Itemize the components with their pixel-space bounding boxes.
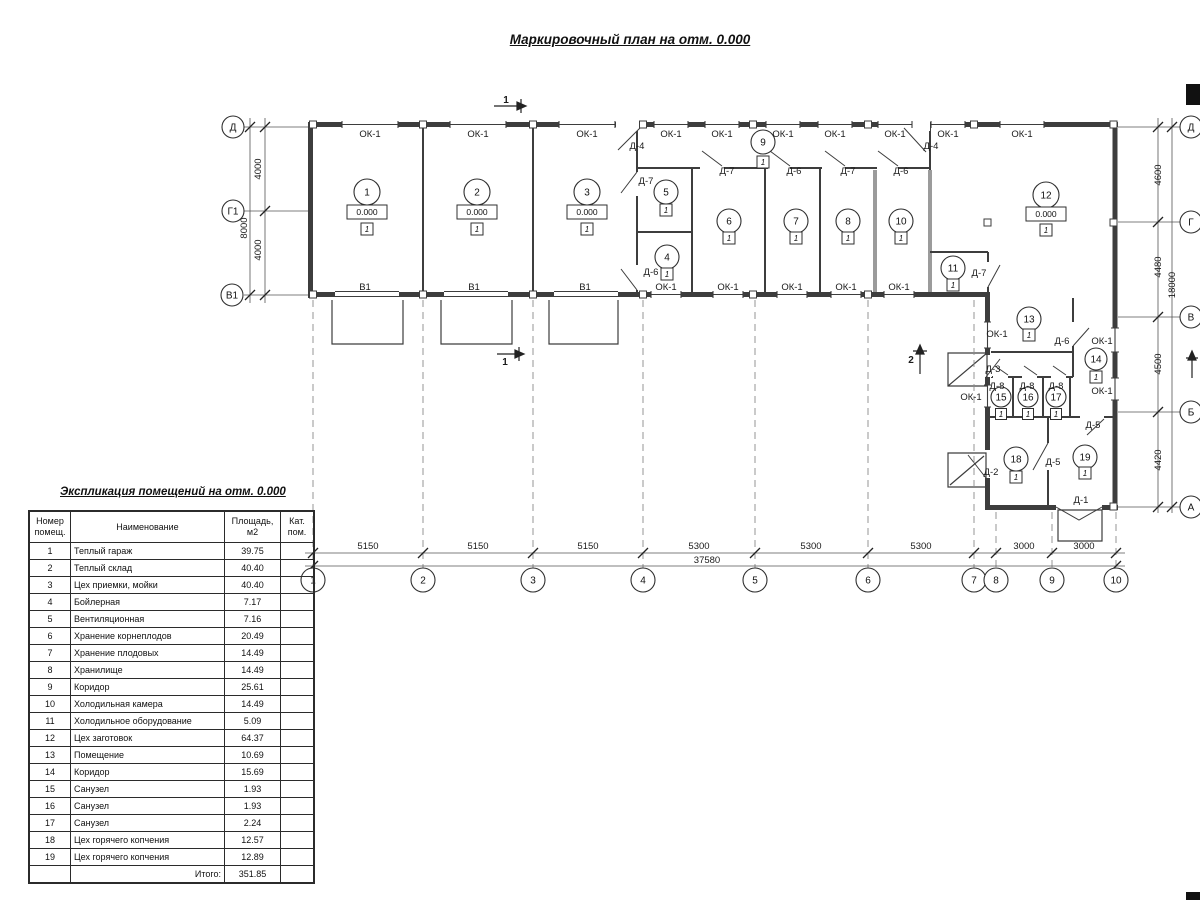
axis-bubble-label: 7 <box>971 576 977 587</box>
axis-bubble-label: В <box>1188 313 1195 324</box>
floor-type-mark-label: 1 <box>794 234 798 243</box>
table-row: 11Холодильное оборудование5.09 <box>29 713 314 730</box>
floor-type-mark-label: 1 <box>1026 410 1030 419</box>
room-bubble-label: 19 <box>1079 453 1091 464</box>
table-cell: Коридор <box>71 764 225 781</box>
floor-type-mark-label: 1 <box>1054 410 1058 419</box>
table-cell <box>281 713 315 730</box>
table-row: 10Холодильная камера14.49 <box>29 696 314 713</box>
axis-bubble-label: Б <box>1188 408 1195 419</box>
window-mark: ОК-1 <box>960 392 981 403</box>
table-cell: 7.16 <box>225 611 281 628</box>
door-mark: Д-3 <box>986 364 1001 375</box>
plan-labels: ДГ1В1ДГВБА123456789101235496781011121314… <box>226 95 1195 587</box>
gate-mark: В1 <box>579 282 591 293</box>
floor-type-mark-label: 1 <box>727 234 731 243</box>
dimension-total: 18000 <box>1167 272 1178 298</box>
window-mark: ОК-1 <box>781 282 802 293</box>
table-cell <box>281 628 315 645</box>
table-cell <box>281 798 315 815</box>
elevation-mark-label: 0.000 <box>576 207 598 217</box>
door-mark: Д-6 <box>644 267 659 278</box>
floor-type-mark-label: 1 <box>846 234 850 243</box>
floor-type-mark-label: 1 <box>665 270 669 279</box>
table-cell: 15 <box>29 781 71 798</box>
axis-bubble-label: 8 <box>993 576 999 587</box>
door-mark: Д-8 <box>1020 381 1035 392</box>
door-mark: Д-1 <box>1074 495 1089 506</box>
total-empty-cell <box>29 866 71 884</box>
table-cell: 3 <box>29 577 71 594</box>
axis-bubble-label: 9 <box>1049 576 1055 587</box>
table-cell: 16 <box>29 798 71 815</box>
table-cell: 1 <box>29 543 71 560</box>
table-cell <box>281 815 315 832</box>
table-cell <box>281 849 315 866</box>
floor-type-mark-label: 1 <box>1094 373 1098 382</box>
table-cell: 14.49 <box>225 645 281 662</box>
table-cell <box>281 730 315 747</box>
door-mark: Д-2 <box>984 467 999 478</box>
table-cell: 10 <box>29 696 71 713</box>
dimension: 4000 <box>253 239 264 260</box>
room-bubble-label: 3 <box>584 188 590 199</box>
table-cell: 8 <box>29 662 71 679</box>
table-cell: 40.40 <box>225 560 281 577</box>
table-row: 15Санузел1.93 <box>29 781 314 798</box>
table-cell: 14.49 <box>225 662 281 679</box>
table-cell <box>281 560 315 577</box>
window-mark: ОК-1 <box>711 129 732 140</box>
table-cell: 7.17 <box>225 594 281 611</box>
dimension: 3000 <box>1013 541 1034 552</box>
window-mark: ОК-1 <box>772 129 793 140</box>
dimension-total: 37580 <box>694 555 720 566</box>
room-bubble-label: 9 <box>760 138 766 149</box>
axis-bubble-label: Д <box>1188 123 1195 134</box>
explication-body: 1Теплый гараж39.752Теплый склад40.403Цех… <box>29 543 314 866</box>
exterior-walls <box>308 122 1118 510</box>
table-cell: 15.69 <box>225 764 281 781</box>
total-empty-cell <box>281 866 315 884</box>
table-cell: 25.61 <box>225 679 281 696</box>
floor-type-mark-label: 1 <box>1027 331 1031 340</box>
room-bubble-label: 8 <box>845 217 851 228</box>
table-cell: 19 <box>29 849 71 866</box>
table-cell: 6 <box>29 628 71 645</box>
room-bubble-label: 2 <box>474 188 480 199</box>
elevation-mark-label: 0.000 <box>466 207 488 217</box>
door-mark: Д-6 <box>1055 336 1070 347</box>
floor-type-mark-label: 1 <box>1044 226 1048 235</box>
table-cell <box>281 611 315 628</box>
axis-bubble-label: А <box>1188 503 1195 514</box>
dimension: 4480 <box>1153 256 1164 277</box>
door-mark: Д-6 <box>787 166 802 177</box>
table-row: 3Цех приемки, мойки40.40 <box>29 577 314 594</box>
room-bubble-label: 6 <box>726 217 732 228</box>
table-cell: Холодильная камера <box>71 696 225 713</box>
table-cell <box>281 645 315 662</box>
grid-lines <box>313 300 1116 568</box>
explication-total: Итого: 351.85 <box>29 866 314 884</box>
axis-bubble-label: 2 <box>420 576 426 587</box>
table-cell: Хранение плодовых <box>71 645 225 662</box>
dimension: 5300 <box>910 541 931 552</box>
table-cell: 17 <box>29 815 71 832</box>
sheet-corner-mark <box>1186 892 1200 900</box>
gate-mark: В1 <box>359 282 371 293</box>
room-bubble-label: 14 <box>1090 355 1102 366</box>
floor-type-mark-label: 1 <box>585 225 589 234</box>
drawing-sheet: Маркировочный план на отм. 0.000 Эксплик… <box>0 0 1200 900</box>
table-cell: 39.75 <box>225 543 281 560</box>
room-bubble-label: 12 <box>1040 191 1052 202</box>
dimension: 3000 <box>1073 541 1094 552</box>
floor-type-mark-label: 1 <box>664 206 668 215</box>
elevation-mark-label: 0.000 <box>356 207 378 217</box>
table-cell: 2.24 <box>225 815 281 832</box>
axis-bubble-label: Г1 <box>228 207 239 218</box>
table-row: 19Цех горячего копчения12.89 <box>29 849 314 866</box>
room-bubble-label: 13 <box>1023 315 1035 326</box>
axis-bubble-label: 10 <box>1110 576 1122 587</box>
dimension: 5150 <box>467 541 488 552</box>
pilasters <box>310 121 1118 510</box>
table-row: 14Коридор15.69 <box>29 764 314 781</box>
floor-type-mark-label: 1 <box>899 234 903 243</box>
room-bubble-label: 7 <box>793 217 799 228</box>
table-cell <box>281 594 315 611</box>
table-cell: 14 <box>29 764 71 781</box>
table-cell: 1.93 <box>225 798 281 815</box>
table-cell: 10.69 <box>225 747 281 764</box>
elevation-mark-label: 0.000 <box>1035 209 1057 219</box>
table-cell <box>281 543 315 560</box>
table-row: 9Коридор25.61 <box>29 679 314 696</box>
room-bubble-label: 11 <box>948 264 959 275</box>
door-mark: Д-4 <box>924 141 939 152</box>
total-label: Итого: <box>71 866 225 884</box>
table-cell: 13 <box>29 747 71 764</box>
room-bubble-label: 17 <box>1050 393 1062 404</box>
header-room-area: Площадь, м2 <box>225 511 281 543</box>
header-room-cat: Кат. пом. <box>281 511 315 543</box>
table-cell: 18 <box>29 832 71 849</box>
table-cell: 20.49 <box>225 628 281 645</box>
table-cell <box>281 764 315 781</box>
table-row: 7Хранение плодовых14.49 <box>29 645 314 662</box>
axis-bubble-label: 3 <box>530 576 536 587</box>
explication-header: Номер помещ. Наименование Площадь, м2 Ка… <box>29 511 314 543</box>
floor-type-mark-label: 1 <box>951 281 955 290</box>
dimension: 4000 <box>253 158 264 179</box>
table-row: 8Хранилище14.49 <box>29 662 314 679</box>
table-cell: 40.40 <box>225 577 281 594</box>
section-mark-label: 2 <box>908 355 914 366</box>
axis-bubble-label: 6 <box>865 576 871 587</box>
table-cell: Холодильное оборудование <box>71 713 225 730</box>
axis-bubble-label: Д <box>230 123 237 134</box>
door-mark: Д-7 <box>972 268 987 279</box>
window-mark: ОК-1 <box>467 129 488 140</box>
table-cell: Теплый гараж <box>71 543 225 560</box>
table-cell: 14.49 <box>225 696 281 713</box>
floor-type-mark-label: 1 <box>1014 473 1018 482</box>
window-lines <box>335 121 1119 407</box>
table-row: 17Санузел2.24 <box>29 815 314 832</box>
door-mark: Д-5 <box>1086 420 1101 431</box>
window-mark: ОК-1 <box>937 129 958 140</box>
door-mark: Д-4 <box>630 141 645 152</box>
table-cell: Помещение <box>71 747 225 764</box>
table-cell <box>281 781 315 798</box>
table-cell: Цех приемки, мойки <box>71 577 225 594</box>
axis-bubble-label: В1 <box>226 291 239 302</box>
table-cell: Вентиляционная <box>71 611 225 628</box>
room-bubble-label: 5 <box>663 188 669 199</box>
table-cell: 11 <box>29 713 71 730</box>
door-mark: Д-7 <box>841 166 856 177</box>
door-mark: Д-8 <box>990 381 1005 392</box>
door-mark: Д-5 <box>1046 457 1061 468</box>
door-mark: Д-6 <box>894 166 909 177</box>
window-mark: ОК-1 <box>824 129 845 140</box>
floor-type-mark-label: 1 <box>761 158 765 167</box>
table-row: 6Хранение корнеплодов20.49 <box>29 628 314 645</box>
table-row: 12Цех заготовок64.37 <box>29 730 314 747</box>
dimension: 5300 <box>688 541 709 552</box>
window-mark: ОК-1 <box>359 129 380 140</box>
room-bubble-label: 1 <box>364 188 370 199</box>
window-mark: ОК-1 <box>835 282 856 293</box>
table-cell: 12.89 <box>225 849 281 866</box>
table-cell: 12.57 <box>225 832 281 849</box>
table-cell: Бойлерная <box>71 594 225 611</box>
table-cell: 5.09 <box>225 713 281 730</box>
dimension: 8000 <box>239 217 250 238</box>
table-row: 16Санузел1.93 <box>29 798 314 815</box>
window-mark: ОК-1 <box>986 329 1007 340</box>
table-cell: 5 <box>29 611 71 628</box>
door-mark: Д-8 <box>1049 381 1064 392</box>
window-mark: ОК-1 <box>1011 129 1032 140</box>
table-cell: 2 <box>29 560 71 577</box>
table-cell: 1.93 <box>225 781 281 798</box>
table-cell: Санузел <box>71 815 225 832</box>
table-cell <box>281 679 315 696</box>
section-mark-label: 1 <box>503 95 509 106</box>
table-row: 18Цех горячего копчения12.57 <box>29 832 314 849</box>
table-cell: 9 <box>29 679 71 696</box>
table-cell: Хранилище <box>71 662 225 679</box>
table-row: 4Бойлерная7.17 <box>29 594 314 611</box>
dimension: 4600 <box>1153 164 1164 185</box>
section-mark-label: 1 <box>502 357 508 368</box>
room-bubble-label: 16 <box>1022 393 1034 404</box>
sheet-corner-mark <box>1186 84 1200 105</box>
door-mark: Д-7 <box>720 166 735 177</box>
table-cell: Санузел <box>71 798 225 815</box>
window-mark: ОК-1 <box>888 282 909 293</box>
dimension: 5150 <box>577 541 598 552</box>
dimension: 5300 <box>800 541 821 552</box>
dimension-lines <box>250 118 1172 566</box>
table-cell: 4 <box>29 594 71 611</box>
table-row: 5Вентиляционная7.16 <box>29 611 314 628</box>
gate-mark: В1 <box>468 282 480 293</box>
window-mark: ОК-1 <box>717 282 738 293</box>
floor-type-mark-label: 1 <box>365 225 369 234</box>
axis-bubble-label: 4 <box>640 576 646 587</box>
table-cell: Цех горячего копчения <box>71 849 225 866</box>
dimension: 4500 <box>1153 353 1164 374</box>
table-cell: 12 <box>29 730 71 747</box>
window-mark: ОК-1 <box>1091 336 1112 347</box>
total-value: 351.85 <box>225 866 281 884</box>
table-cell: Цех горячего копчения <box>71 832 225 849</box>
room-bubble-label: 18 <box>1010 455 1022 466</box>
axis-bubble-label: Г <box>1188 218 1194 229</box>
floor-type-mark-label: 1 <box>475 225 479 234</box>
table-cell: Хранение корнеплодов <box>71 628 225 645</box>
window-mark: ОК-1 <box>655 282 676 293</box>
dimension: 4420 <box>1153 449 1164 470</box>
table-cell <box>281 577 315 594</box>
table-cell: 7 <box>29 645 71 662</box>
window-mark: ОК-1 <box>576 129 597 140</box>
dimension: 5150 <box>357 541 378 552</box>
table-row: 13Помещение10.69 <box>29 747 314 764</box>
table-cell <box>281 662 315 679</box>
door-mark: Д-7 <box>639 176 654 187</box>
room-bubble-label: 10 <box>895 217 907 228</box>
table-cell: Санузел <box>71 781 225 798</box>
window-mark: ОК-1 <box>1091 386 1112 397</box>
room-bubble-label: 4 <box>664 253 670 264</box>
explication-table: Номер помещ. Наименование Площадь, м2 Ка… <box>28 510 315 884</box>
table-cell <box>281 747 315 764</box>
table-row: 1Теплый гараж39.75 <box>29 543 314 560</box>
room-bubble-label: 15 <box>995 393 1007 404</box>
wall-openings <box>335 118 1120 512</box>
table-cell: 64.37 <box>225 730 281 747</box>
axis-bubble-label: 5 <box>752 576 758 587</box>
floor-type-mark-label: 1 <box>999 410 1003 419</box>
table-row: 2Теплый склад40.40 <box>29 560 314 577</box>
table-cell <box>281 696 315 713</box>
window-mark: ОК-1 <box>884 129 905 140</box>
table-cell: Коридор <box>71 679 225 696</box>
header-room-number: Номер помещ. <box>29 511 71 543</box>
table-cell: Теплый склад <box>71 560 225 577</box>
header-room-name: Наименование <box>71 511 225 543</box>
floor-type-mark-label: 1 <box>1083 469 1087 478</box>
window-mark: ОК-1 <box>660 129 681 140</box>
table-cell <box>281 832 315 849</box>
table-cell: Цех заготовок <box>71 730 225 747</box>
